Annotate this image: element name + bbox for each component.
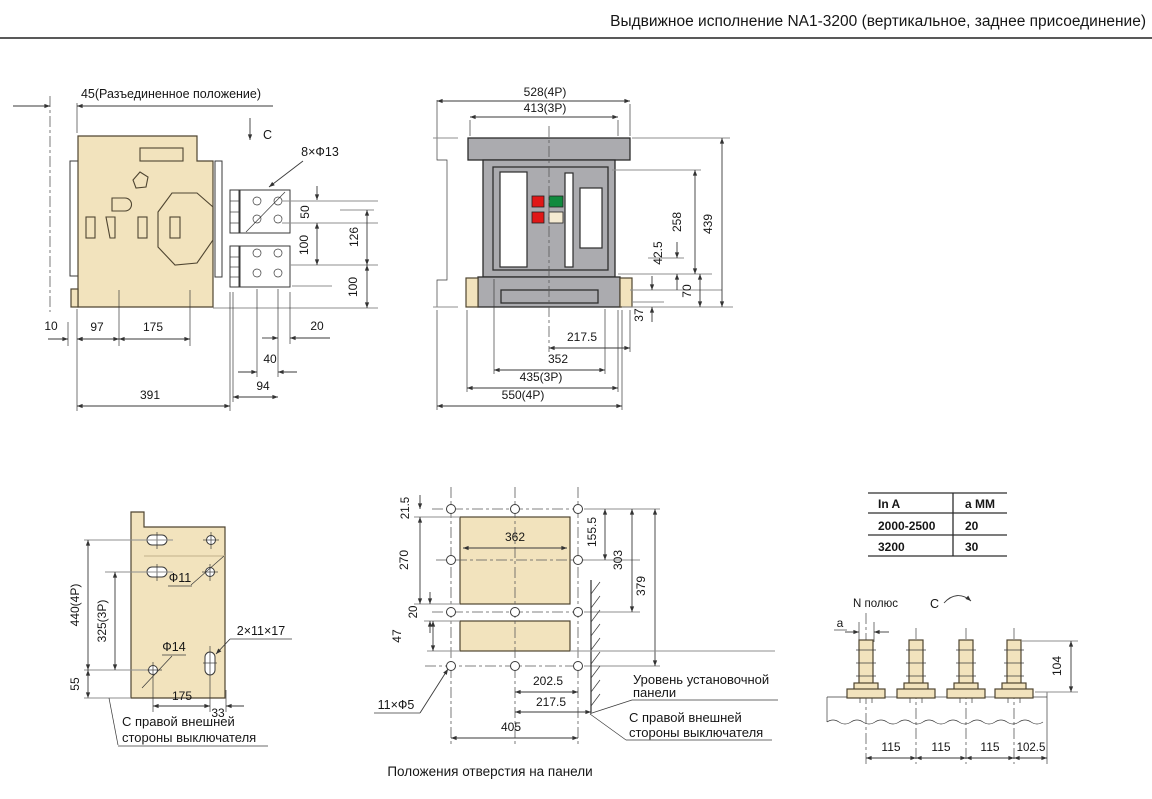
dim-202-5: 202.5 bbox=[533, 674, 563, 688]
indicator-green bbox=[549, 196, 563, 207]
dim-175-plate: 175 bbox=[172, 689, 192, 703]
table-header-in: In A bbox=[878, 497, 901, 511]
side-view-drawing: C 8×Ф13 45(Разъединенное положение) 50 1… bbox=[13, 87, 378, 411]
indicator-cream bbox=[549, 212, 563, 223]
dim-102-5: 102.5 bbox=[1017, 742, 1046, 754]
callout-11xf5: 11×Ф5 bbox=[378, 698, 415, 712]
dim-100b: 100 bbox=[346, 277, 360, 297]
drawing-sheet: Выдвижное исполнение NA1-3200 (вертикаль… bbox=[0, 0, 1152, 799]
dim-42-5: 42.5 bbox=[651, 241, 665, 265]
dim-155-5: 155.5 bbox=[585, 517, 599, 547]
pole-3 bbox=[947, 628, 985, 764]
level-note-line2: панели bbox=[633, 685, 676, 700]
right-plate-drawing: Ф11 Ф14 2×11×17 440(4P) 325(3P) 55 175 3… bbox=[68, 512, 292, 746]
dim-a: a bbox=[837, 616, 844, 630]
section-c-label: C bbox=[263, 128, 272, 142]
dim-405: 405 bbox=[501, 720, 521, 734]
dim-352: 352 bbox=[548, 352, 568, 366]
dim-94: 94 bbox=[256, 379, 270, 393]
dim-21-5: 21.5 bbox=[400, 497, 412, 519]
table-header-a: a MM bbox=[965, 497, 995, 511]
dim-115-1: 115 bbox=[881, 740, 900, 754]
section-c-label-2: C bbox=[930, 597, 939, 611]
dim-55: 55 bbox=[68, 677, 82, 691]
dim-550-4p: 550(4P) bbox=[502, 388, 545, 402]
dim-126: 126 bbox=[347, 227, 361, 247]
dim-175: 175 bbox=[143, 320, 163, 334]
table-cell-r2c2: 30 bbox=[965, 540, 979, 554]
dim-362: 362 bbox=[505, 530, 525, 544]
holes-callout-8xf13: 8×Ф13 bbox=[301, 145, 339, 159]
dim-104: 104 bbox=[1050, 656, 1064, 676]
dim-97: 97 bbox=[90, 320, 104, 334]
plate-note-line2: стороны выключателя bbox=[122, 730, 256, 745]
dim-115-2: 115 bbox=[931, 740, 950, 754]
pole-2 bbox=[897, 628, 935, 764]
dim-439: 439 bbox=[701, 214, 715, 234]
callout-f11: Ф11 bbox=[169, 571, 192, 585]
table-cell-r2c1: 3200 bbox=[878, 540, 905, 554]
dim-217-5-panel: 217.5 bbox=[536, 695, 566, 709]
front-view-drawing: 528(4P) 413(3P) 42.5 70 37 258 439 bbox=[433, 85, 733, 410]
dim-20-panel: 20 bbox=[408, 606, 420, 619]
dim-10: 10 bbox=[44, 319, 58, 333]
selection-table: In A a MM 2000-2500 20 3200 30 bbox=[868, 493, 1007, 556]
dim-37: 37 bbox=[632, 308, 646, 322]
table-cell-r1c2: 20 bbox=[965, 519, 979, 533]
dim-391: 391 bbox=[140, 388, 160, 402]
indicator-red-2 bbox=[532, 212, 544, 223]
dim-47: 47 bbox=[390, 629, 404, 643]
dim-270: 270 bbox=[397, 550, 411, 570]
pole-n-label: N полюс bbox=[853, 598, 898, 610]
dim-435-3p: 435(3P) bbox=[520, 370, 563, 384]
panel-caption: Положения отверстия на панели bbox=[387, 764, 592, 779]
dim-70: 70 bbox=[680, 284, 694, 298]
pole-spacing-drawing: N полюс C a bbox=[827, 596, 1078, 764]
dim-20: 20 bbox=[310, 319, 324, 333]
pole-1 bbox=[847, 613, 885, 764]
panel-side-note-line1: С правой внешней bbox=[629, 710, 742, 725]
dim-325-3p: 325(3P) bbox=[95, 600, 109, 643]
panel-side-note-line2: стороны выключателя bbox=[629, 725, 763, 740]
dim-40: 40 bbox=[263, 352, 277, 366]
dim-413-3p: 413(3P) bbox=[524, 101, 567, 115]
dim-258: 258 bbox=[670, 212, 684, 232]
hatch-marks bbox=[591, 582, 600, 706]
dim-217-5: 217.5 bbox=[567, 330, 597, 344]
panel-holes-drawing: 362 21.5 270 20 47 155.5 303 379 bbox=[374, 487, 778, 779]
dim-379: 379 bbox=[634, 576, 648, 596]
title-block: Выдвижное исполнение NA1-3200 (вертикаль… bbox=[0, 13, 1152, 38]
dim-100a: 100 bbox=[297, 235, 311, 255]
plate-note-line1: С правой внешней bbox=[122, 714, 235, 729]
page-title: Выдвижное исполнение NA1-3200 (вертикаль… bbox=[610, 13, 1146, 30]
dim-50: 50 bbox=[298, 205, 312, 219]
dim-528-4p: 528(4P) bbox=[524, 85, 567, 99]
table-cell-r1c1: 2000-2500 bbox=[878, 519, 936, 533]
drawing-canvas: Выдвижное исполнение NA1-3200 (вертикаль… bbox=[0, 0, 1152, 799]
callout-f14: Ф14 bbox=[162, 640, 185, 654]
dim-115-3: 115 bbox=[980, 740, 999, 754]
dim-440-4p: 440(4P) bbox=[68, 584, 82, 627]
dim-disconnected: 45(Разъединенное положение) bbox=[81, 87, 261, 101]
dim-303: 303 bbox=[611, 550, 625, 570]
indicator-red-1 bbox=[532, 196, 544, 207]
callout-slot-2x11x17: 2×11×17 bbox=[237, 624, 285, 638]
